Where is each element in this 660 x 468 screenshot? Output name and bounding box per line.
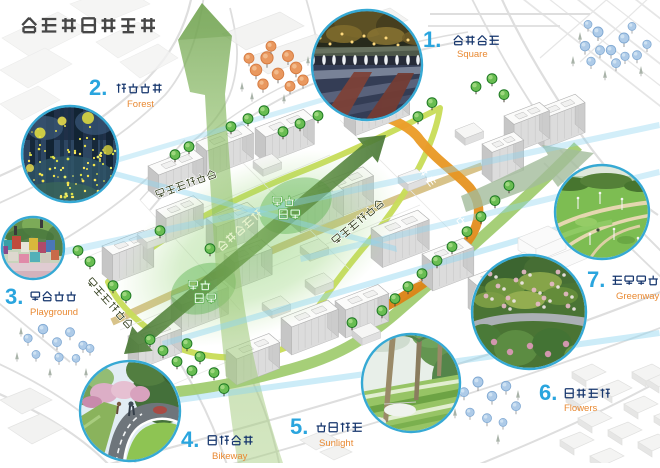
svg-text:1.: 1.	[423, 27, 441, 52]
svg-text:5.: 5.	[290, 414, 308, 439]
svg-text:4.: 4.	[181, 427, 199, 452]
svg-text:Flowers: Flowers	[564, 403, 598, 414]
svg-text:6.: 6.	[539, 380, 557, 405]
svg-text:Bikeway: Bikeway	[212, 451, 248, 462]
svg-text:Greenway: Greenway	[616, 291, 660, 302]
svg-text:Square: Square	[457, 49, 488, 60]
svg-text:3.: 3.	[5, 284, 23, 309]
svg-text:Forest: Forest	[127, 99, 154, 110]
svg-text:2.: 2.	[89, 75, 107, 100]
svg-text:Sunlight: Sunlight	[319, 438, 354, 449]
svg-text:7.: 7.	[587, 267, 605, 292]
svg-text:Playground: Playground	[30, 307, 78, 318]
